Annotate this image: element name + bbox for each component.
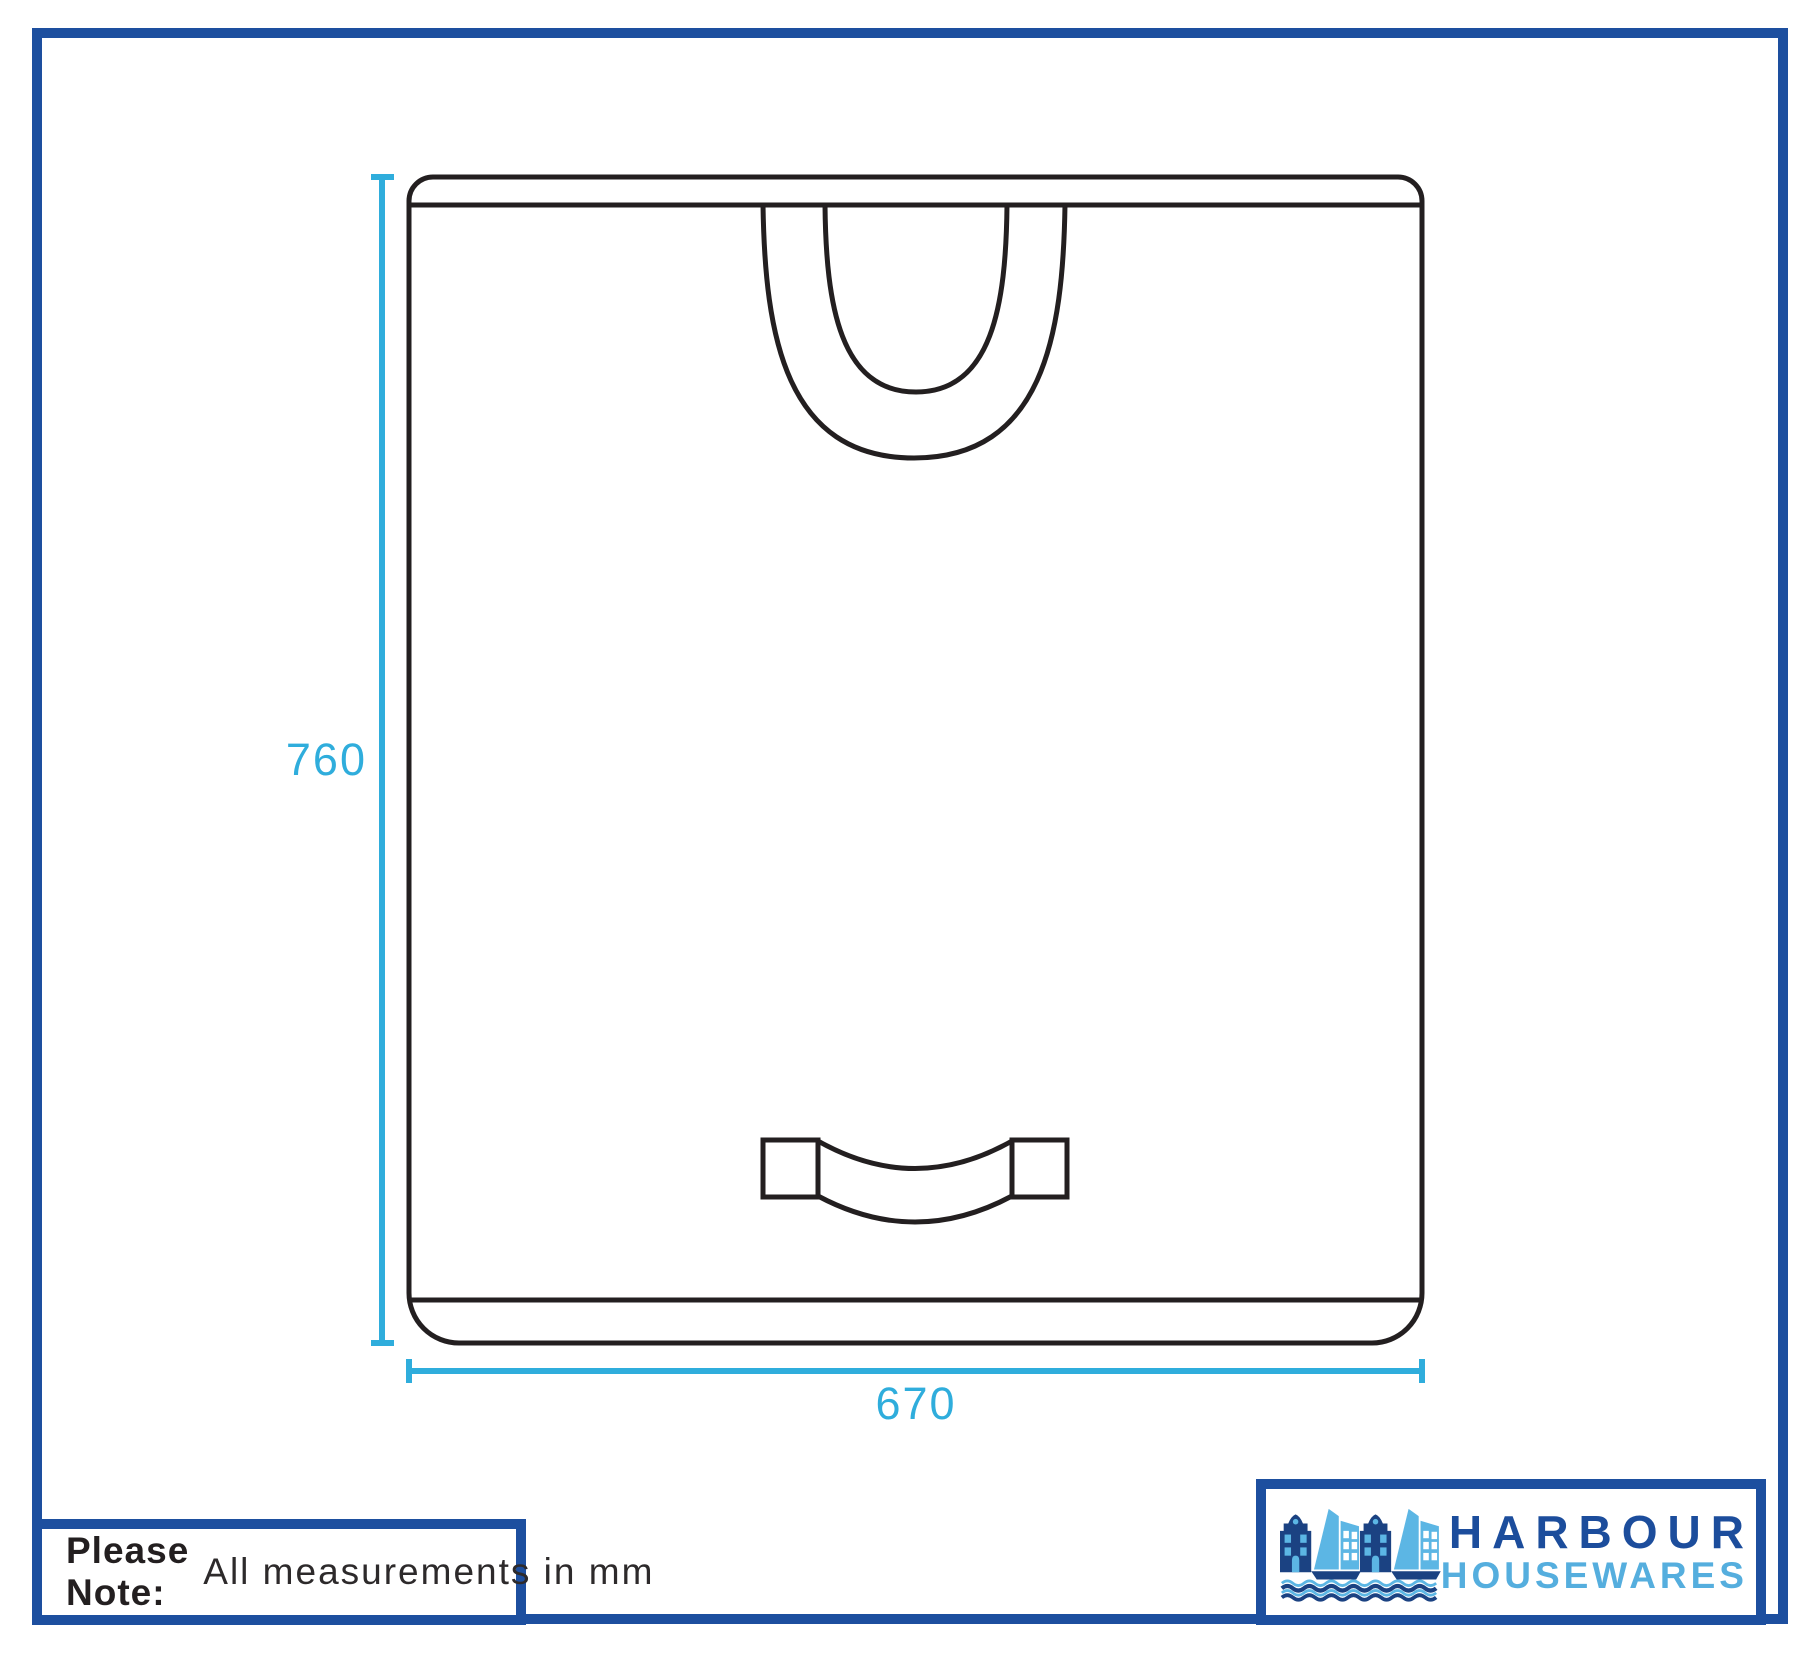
spec-sheet-page: 760 670 Please Note: All measurements in… (0, 0, 1818, 1654)
top-handle-cutout-inner (825, 205, 1007, 392)
bottom-handle-left-mount (763, 1140, 818, 1197)
logo-text-housewares: HOUSEWARES (1441, 1557, 1748, 1595)
bottom-handle-right-mount (1012, 1140, 1067, 1197)
note-label-bold: Please Note: (66, 1530, 189, 1614)
width-dimension-label: 670 (840, 1378, 992, 1430)
height-dimension-label: 760 (217, 734, 367, 786)
note-label-text: All measurements in mm (203, 1551, 654, 1593)
harbour-housewares-icon (1280, 1500, 1441, 1604)
bottom-handle-grip-top (818, 1141, 1012, 1169)
bottom-handle-grip-bottom (818, 1196, 1012, 1222)
top-handle-cutout-outer (763, 205, 1065, 458)
note-box: Please Note: All measurements in mm (32, 1519, 526, 1625)
logo-text: HARBOUR HOUSEWARES (1441, 1509, 1744, 1595)
logo-box: HARBOUR HOUSEWARES (1256, 1479, 1766, 1625)
logo-text-harbour: HARBOUR (1441, 1509, 1754, 1555)
